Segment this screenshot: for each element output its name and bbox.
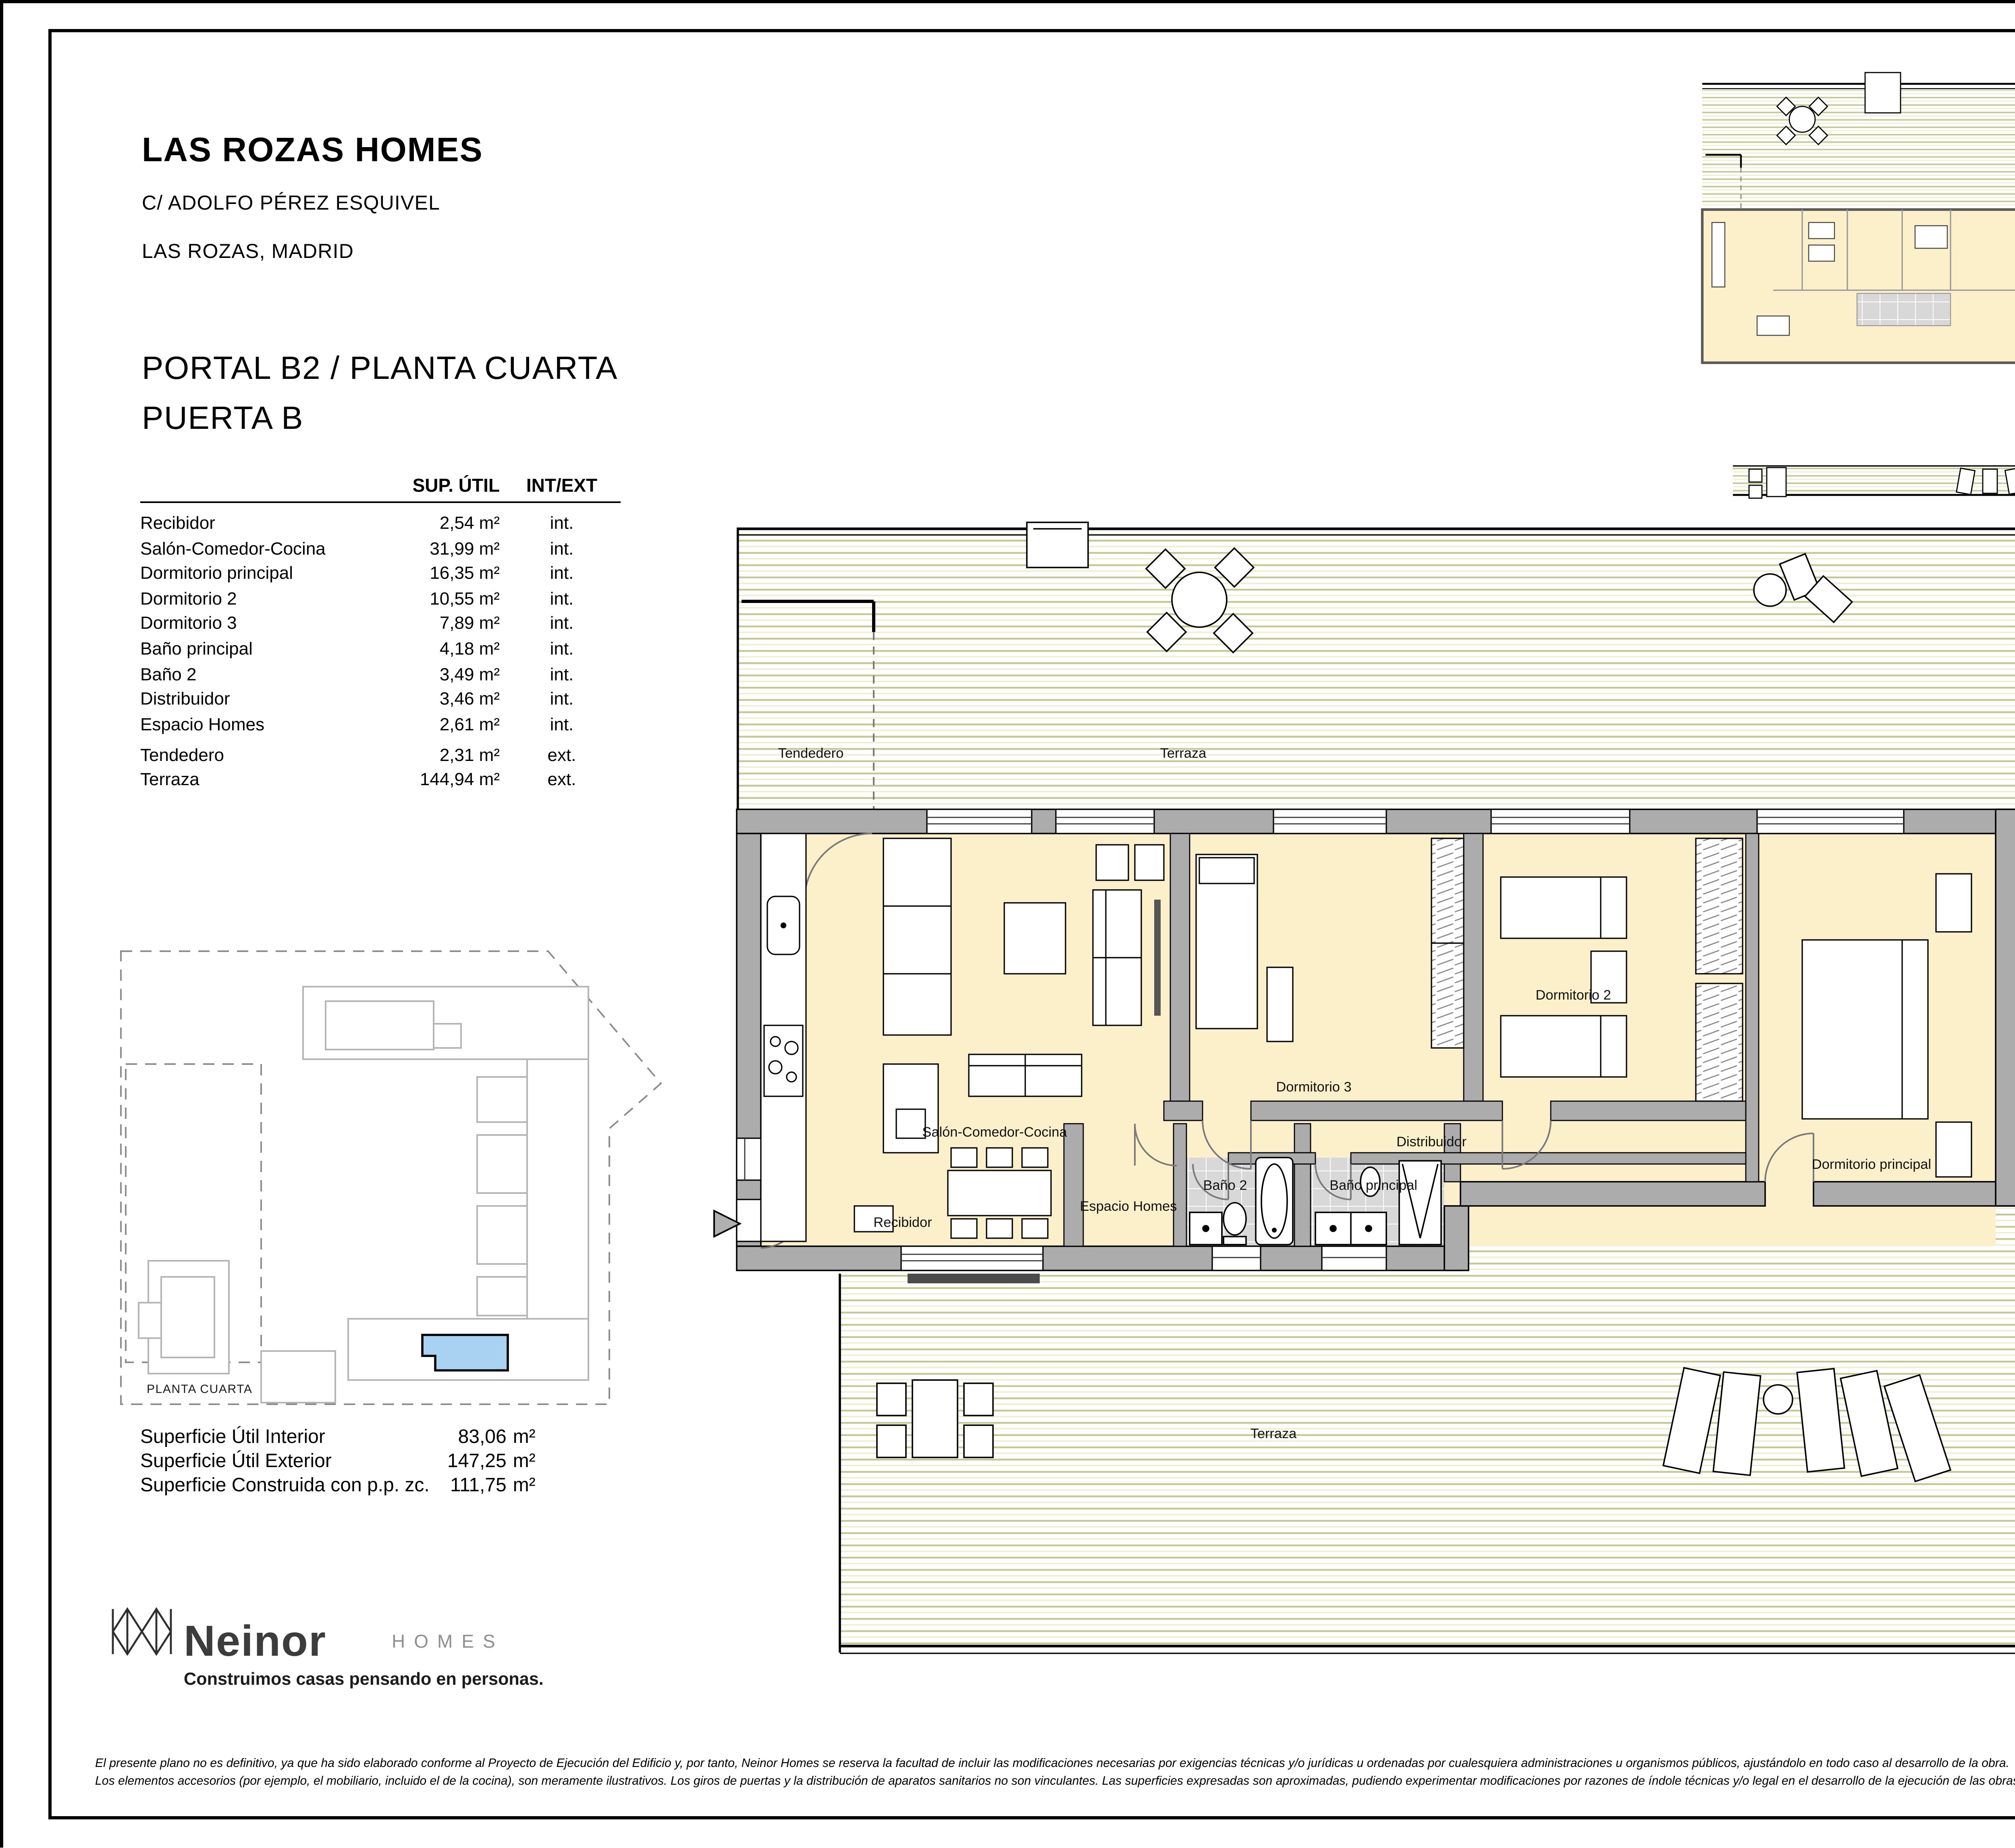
bed-icon — [1501, 877, 1627, 938]
room-label: Espacio Homes — [1080, 1199, 1177, 1214]
room-label: Dormitorio 3 — [1276, 1079, 1351, 1095]
room-label: Dormitorio 2 — [1535, 987, 1611, 1003]
nightstand-icon — [1936, 1122, 1971, 1177]
room-label: Baño principal — [1329, 1178, 1417, 1193]
chair-icon — [877, 1383, 906, 1416]
side-table-icon — [1764, 1385, 1793, 1414]
shower-icon — [1399, 1161, 1441, 1245]
wardrobe-icon — [1696, 983, 1743, 1101]
bed-icon — [1501, 1016, 1627, 1077]
drawing-layer: Tendedero Terraza Salón-Comedor-Cocina R… — [0, 0, 2015, 1848]
chair-icon — [951, 1148, 977, 1167]
window-icon — [927, 809, 1032, 834]
window-icon — [1322, 1246, 1386, 1270]
chair-icon — [987, 1148, 1012, 1167]
pillow-icon — [1199, 858, 1254, 883]
chair-icon — [1022, 1219, 1048, 1238]
desk-icon — [1267, 967, 1293, 1041]
armchair-icon — [1135, 845, 1164, 880]
unit-highlight — [422, 1335, 508, 1370]
room-label: Salón-Comedor-Cocina — [922, 1125, 1067, 1140]
chair-icon — [877, 1425, 906, 1457]
table-icon — [912, 1380, 958, 1457]
round-table-icon — [1172, 572, 1227, 627]
armchair-icon — [1096, 845, 1128, 880]
window-icon — [737, 1138, 761, 1180]
dining-table-icon — [948, 1170, 1051, 1216]
room-label: Baño 2 — [1203, 1178, 1247, 1193]
planter-icon — [1865, 73, 1901, 113]
room-label: Terraza — [1160, 746, 1207, 761]
mini-overview-plan — [1702, 73, 2015, 498]
window-icon — [1212, 1246, 1261, 1270]
coffee-table-icon — [1004, 903, 1066, 974]
room-label: Recibidor — [873, 1215, 932, 1230]
chair-icon — [1022, 1148, 1048, 1167]
round-table-icon — [1754, 574, 1786, 606]
plan-sheet: LAS ROZAS HOMES C/ ADOLFO PÉREZ ESQUIVEL… — [0, 0, 2015, 1848]
chair-icon — [964, 1425, 993, 1457]
sun-lounger-icon — [1983, 469, 1997, 493]
room-label: Tendedero — [778, 746, 843, 761]
room-label: Terraza — [1251, 1426, 1297, 1441]
room-label: Distribuidor — [1396, 1134, 1467, 1150]
key-plan — [121, 951, 661, 1404]
wardrobe-icon — [1696, 838, 1743, 974]
main-floor-plan: Tendedero Terraza Salón-Comedor-Cocina R… — [714, 522, 2015, 1685]
chair-icon — [951, 1219, 977, 1238]
window-icon — [1491, 809, 1630, 834]
window-icon — [1273, 809, 1386, 834]
cabinet-icon — [883, 838, 951, 1035]
room-label: Dormitorio principal — [1812, 1157, 1931, 1172]
hob-icon — [764, 1025, 803, 1096]
chair-icon — [964, 1383, 993, 1416]
toilet-icon — [1224, 1203, 1246, 1235]
window-icon — [1757, 809, 1904, 834]
bed-icon — [1802, 940, 1928, 1119]
nightstand-icon — [1936, 874, 1971, 932]
chair-icon — [987, 1219, 1012, 1238]
round-table-icon — [1789, 106, 1815, 132]
tv-icon — [1154, 900, 1161, 1016]
balcony-door-icon — [901, 1246, 1043, 1283]
neinor-logo-icon — [113, 1609, 171, 1654]
window-icon — [1056, 809, 1154, 834]
